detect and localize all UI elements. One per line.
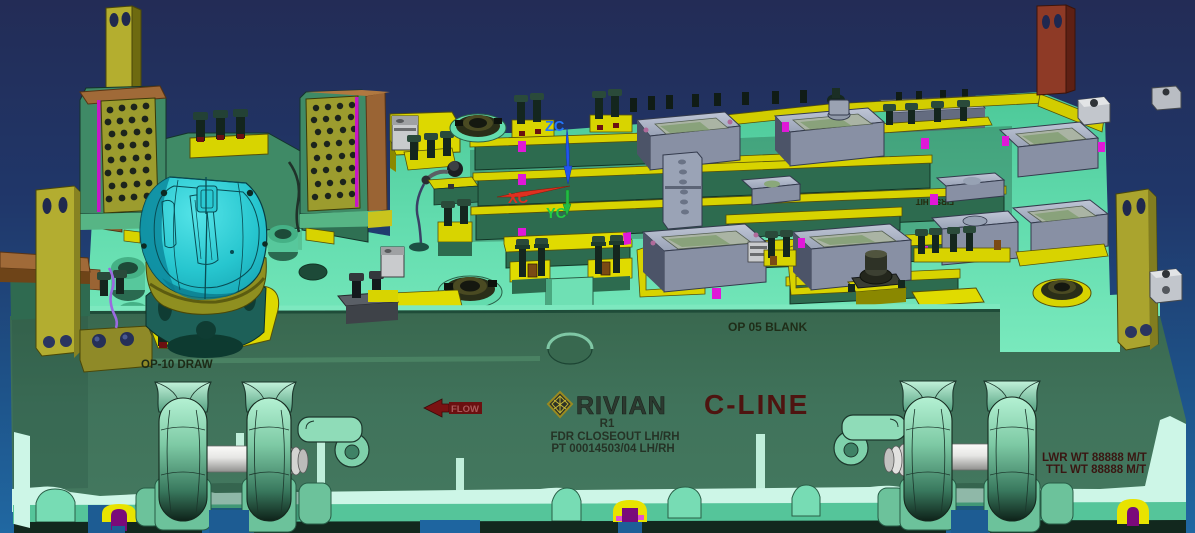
svg-text:PT 00014503/04 LH/RH: PT 00014503/04 LH/RH: [551, 443, 674, 455]
svg-text:XC: XC: [508, 191, 529, 207]
svg-text:R1: R1: [600, 418, 615, 430]
svg-text:FDR CLOSEOUT LH/RH: FDR CLOSEOUT LH/RH: [550, 431, 679, 443]
svg-text:C-LINE: C-LINE: [704, 389, 809, 420]
svg-text:OP-10 DRAW: OP-10 DRAW: [141, 359, 213, 371]
svg-text:YC: YC: [546, 206, 567, 222]
svg-text:ZC: ZC: [545, 119, 565, 135]
svg-text:LWR WT 88888 M/T: LWR WT 88888 M/T: [1042, 452, 1147, 464]
svg-text:FLOW: FLOW: [451, 404, 479, 415]
svg-text:RIVIAN: RIVIAN: [576, 392, 667, 420]
svg-text:TTL WT 88888 M/T: TTL WT 88888 M/T: [1046, 464, 1146, 476]
svg-text:OP 05 BLANK: OP 05 BLANK: [728, 320, 807, 334]
